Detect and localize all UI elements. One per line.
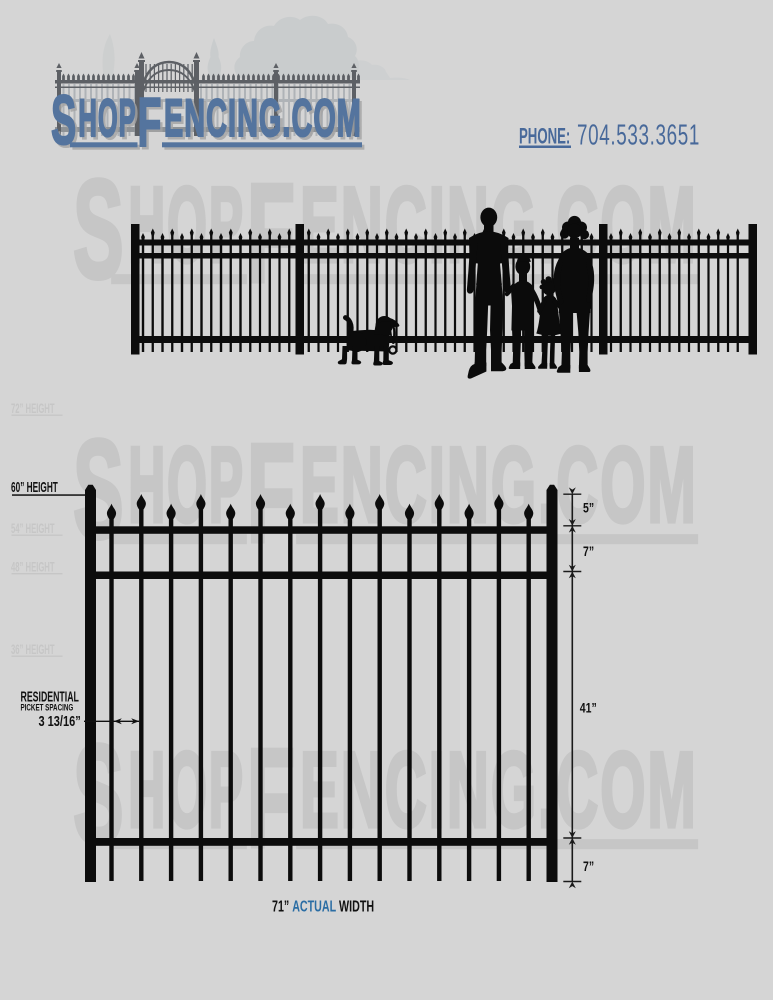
svg-text:36” HEIGHT: 36” HEIGHT <box>11 643 55 658</box>
svg-text:41”: 41” <box>580 700 597 716</box>
svg-text:5”: 5” <box>583 500 594 516</box>
svg-text:71” ACTUAL WIDTH: 71” ACTUAL WIDTH <box>272 898 374 915</box>
svg-text:PICKET SPACING: PICKET SPACING <box>21 702 74 713</box>
svg-text:72” HEIGHT: 72” HEIGHT <box>11 402 55 417</box>
svg-text:7”: 7” <box>583 859 594 875</box>
svg-text:60” HEIGHT: 60” HEIGHT <box>11 478 58 495</box>
svg-text:48” HEIGHT: 48” HEIGHT <box>11 560 55 575</box>
svg-text:7”: 7” <box>583 544 594 560</box>
svg-text:PHONE:: PHONE: <box>519 124 570 148</box>
svg-text:704.533.3651: 704.533.3651 <box>577 120 700 152</box>
svg-text:3 13/16”: 3 13/16” <box>39 712 81 729</box>
svg-text:54” HEIGHT: 54” HEIGHT <box>11 522 55 537</box>
